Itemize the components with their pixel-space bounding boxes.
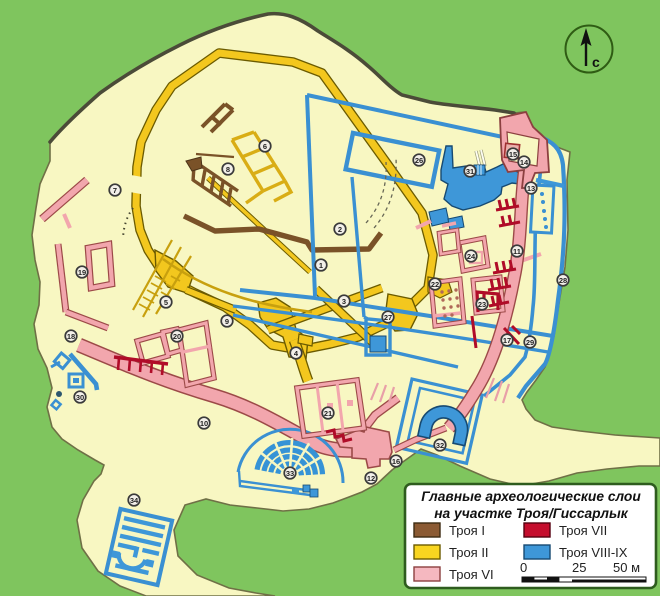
svg-text:Главные археологические слои: Главные археологические слои <box>421 489 641 504</box>
svg-text:32: 32 <box>436 441 444 450</box>
svg-text:Троя VII: Троя VII <box>559 523 607 538</box>
svg-text:12: 12 <box>367 474 375 483</box>
svg-text:21: 21 <box>324 409 332 418</box>
svg-text:19: 19 <box>78 268 86 277</box>
svg-text:17: 17 <box>503 336 511 345</box>
svg-text:30: 30 <box>76 393 84 402</box>
svg-text:с: с <box>592 54 600 70</box>
svg-text:16: 16 <box>392 457 400 466</box>
svg-text:на участке Троя/Гиссарлык: на участке Троя/Гиссарлык <box>434 506 629 521</box>
svg-text:26: 26 <box>415 156 423 165</box>
svg-text:29: 29 <box>526 338 534 347</box>
svg-text:31: 31 <box>466 167 474 176</box>
svg-text:8: 8 <box>226 165 230 174</box>
svg-text:6: 6 <box>263 142 267 151</box>
svg-text:10: 10 <box>200 419 208 428</box>
svg-text:5: 5 <box>164 298 168 307</box>
svg-text:23: 23 <box>478 300 486 309</box>
svg-text:33: 33 <box>286 469 294 478</box>
svg-text:3: 3 <box>342 297 346 306</box>
svg-text:Троя VI: Троя VI <box>449 567 494 582</box>
svg-text:22: 22 <box>431 280 439 289</box>
svg-text:Троя VIII-IX: Троя VIII-IX <box>559 545 628 560</box>
svg-text:27: 27 <box>384 313 392 322</box>
svg-text:11: 11 <box>513 247 521 256</box>
svg-text:25: 25 <box>572 560 586 575</box>
svg-text:Троя II: Троя II <box>449 545 489 560</box>
svg-text:2: 2 <box>338 225 342 234</box>
svg-text:Троя I: Троя I <box>449 523 485 538</box>
svg-text:1: 1 <box>319 261 323 270</box>
svg-text:7: 7 <box>113 186 117 195</box>
svg-text:18: 18 <box>67 332 75 341</box>
svg-text:9: 9 <box>225 317 229 326</box>
svg-text:50 м: 50 м <box>613 560 640 575</box>
svg-text:0: 0 <box>520 560 527 575</box>
svg-text:15: 15 <box>509 150 517 159</box>
svg-text:34: 34 <box>130 496 139 505</box>
svg-text:14: 14 <box>520 158 529 167</box>
svg-text:13: 13 <box>527 184 535 193</box>
svg-text:20: 20 <box>173 332 181 341</box>
svg-text:24: 24 <box>467 252 476 261</box>
svg-text:28: 28 <box>559 276 567 285</box>
